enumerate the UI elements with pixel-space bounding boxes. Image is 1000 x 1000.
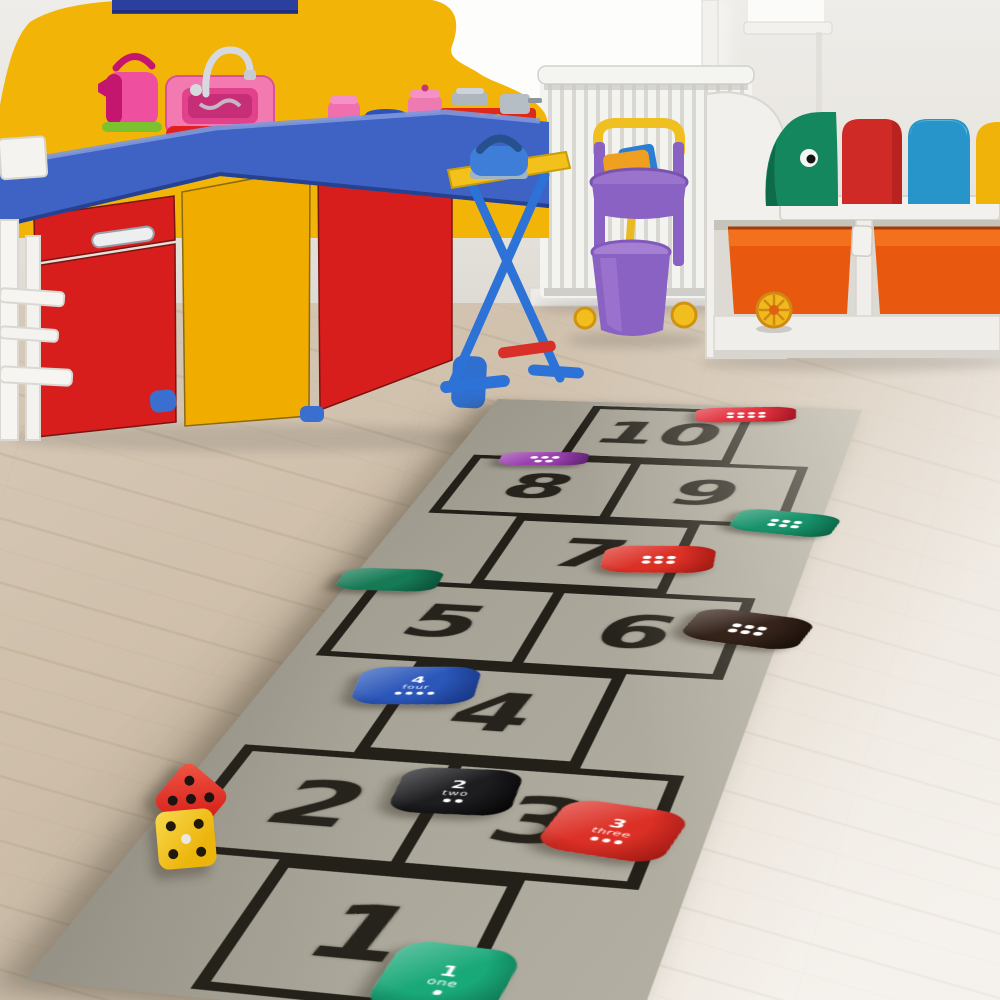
- chrome-pan: [452, 92, 488, 106]
- dot: [588, 836, 598, 841]
- dot: [665, 560, 674, 563]
- trolley-wheel: [672, 303, 696, 327]
- radiator-cap-shadow: [544, 84, 748, 90]
- dot: [731, 623, 743, 628]
- fish-pupil: [807, 155, 816, 164]
- dot: [642, 555, 651, 558]
- dot: [544, 460, 553, 463]
- rug-number: 9: [658, 475, 751, 511]
- dot: [737, 412, 745, 414]
- dot: [551, 456, 560, 459]
- pink-jar-knob: [422, 85, 429, 92]
- dot: [747, 415, 755, 417]
- playroom-scene: 108975642314four2two3three1one: [0, 0, 1000, 1000]
- dot: [612, 840, 622, 845]
- die-pip: [203, 790, 217, 804]
- dot: [666, 556, 675, 559]
- dot: [453, 799, 462, 803]
- rug-number: 5: [387, 598, 500, 645]
- dot: [736, 415, 744, 417]
- dot: [393, 692, 401, 695]
- dot: [777, 524, 787, 528]
- beanbag-word: two: [440, 789, 470, 798]
- die-pip: [168, 849, 179, 860]
- dot: [726, 416, 734, 418]
- dot: [431, 990, 442, 996]
- beanbag-five-green: [332, 567, 446, 592]
- die-pip: [182, 773, 196, 787]
- cushion-red-shade: [892, 121, 902, 204]
- dot: [789, 525, 799, 529]
- dot: [641, 560, 650, 563]
- trolley-basket: [592, 184, 686, 219]
- beanbag-dots: [635, 555, 681, 563]
- beanbag-eight-purple: [497, 452, 591, 465]
- bin-latch: [851, 226, 872, 257]
- dot: [769, 518, 779, 522]
- dot: [540, 456, 549, 459]
- dot: [726, 628, 738, 633]
- beanbag-dots: [523, 456, 564, 462]
- wheel-toy-hub: [769, 305, 779, 315]
- kettle-base: [102, 122, 162, 132]
- faucet-knob: [190, 84, 202, 96]
- rug-number: 10: [584, 418, 733, 451]
- bench-base-shadow: [714, 350, 1000, 358]
- die-pip: [193, 819, 204, 830]
- chrome-pot-handle: [528, 98, 542, 103]
- beanbag-dots: [425, 798, 480, 804]
- dot: [758, 412, 765, 414]
- pink-pot-lid: [330, 96, 358, 104]
- beanbag-dots: [405, 987, 468, 1000]
- chrome-pot: [500, 94, 530, 114]
- kettle-body-shade: [106, 74, 122, 124]
- chrome-pan-lid: [456, 88, 484, 94]
- dot: [600, 838, 610, 843]
- beanbag-number: 4: [410, 676, 427, 685]
- cabinet-foot-blue: [149, 389, 177, 414]
- dot: [756, 626, 768, 631]
- dot: [726, 412, 734, 414]
- chair-seat: [0, 366, 72, 386]
- radiator-cap: [538, 66, 754, 84]
- rug-number: 2: [248, 772, 386, 838]
- wheel-toy: [756, 293, 792, 333]
- dot: [739, 629, 751, 634]
- die-pip: [166, 821, 177, 832]
- beanbag-two-black: 2two: [385, 766, 526, 816]
- dot: [792, 520, 802, 524]
- die-pip: [196, 846, 207, 857]
- beanbag-number: 2: [449, 779, 469, 790]
- cushion-yellow: [976, 122, 1000, 204]
- faucet-spout: [244, 70, 256, 80]
- dot: [404, 692, 412, 695]
- beanbag-word: four: [401, 684, 430, 690]
- beanbag-seven-red: [598, 545, 717, 573]
- beanbag-dots: [761, 518, 808, 529]
- trolley-wheel: [575, 308, 595, 328]
- wall-trim: [816, 32, 822, 114]
- dot: [751, 631, 763, 636]
- dot: [654, 556, 663, 559]
- wall-shelf-shade: [112, 10, 298, 14]
- dot: [415, 692, 423, 695]
- die-pip: [181, 834, 192, 845]
- dot: [747, 412, 754, 414]
- cabinet-foot-blue: [300, 406, 324, 422]
- storage-bin-right-rim: [874, 228, 1000, 246]
- beanbag-ten-red: [694, 407, 796, 423]
- die-pip: [165, 794, 179, 808]
- beanbag-dots: [721, 412, 770, 418]
- dot: [530, 456, 539, 459]
- dot: [781, 519, 791, 523]
- yellow-die: [155, 808, 218, 871]
- storage-bench: [700, 92, 1000, 371]
- beanbag-dots: [389, 692, 439, 695]
- cushion-blue: [908, 119, 970, 204]
- storage-bin-left-rim: [728, 228, 852, 246]
- rug-number: 8: [489, 469, 585, 504]
- window-right: [748, 0, 824, 24]
- dot: [758, 415, 765, 417]
- die-pip: [184, 792, 198, 806]
- dot: [653, 560, 662, 563]
- dot: [442, 799, 451, 803]
- dot: [426, 692, 434, 695]
- beanbag-four-blue: 4four: [348, 667, 483, 705]
- dot: [533, 460, 542, 463]
- dot: [766, 522, 776, 526]
- dot: [743, 624, 755, 629]
- beanbag-dots: [721, 622, 774, 637]
- white-board: [0, 136, 47, 179]
- cabinet-door-yellow: [182, 168, 310, 426]
- rug-number: 6: [580, 608, 689, 656]
